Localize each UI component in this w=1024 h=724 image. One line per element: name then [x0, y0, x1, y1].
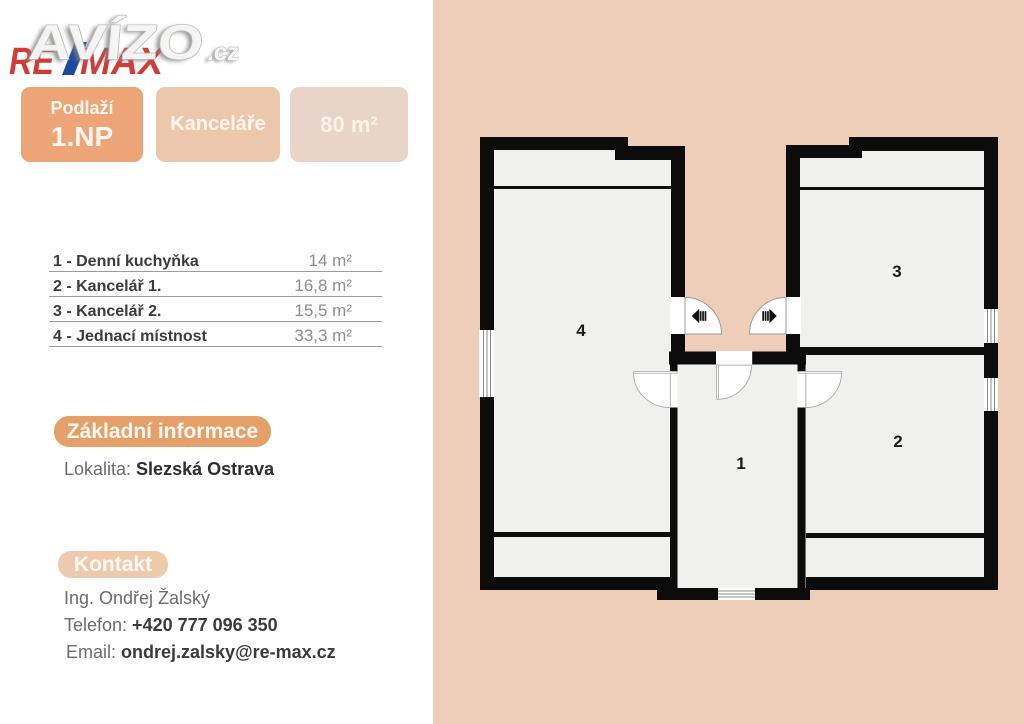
svg-text:4: 4: [576, 321, 586, 340]
svg-text:3: 3: [892, 262, 901, 281]
svg-text:2: 2: [893, 432, 902, 451]
svg-text:1: 1: [736, 454, 745, 473]
